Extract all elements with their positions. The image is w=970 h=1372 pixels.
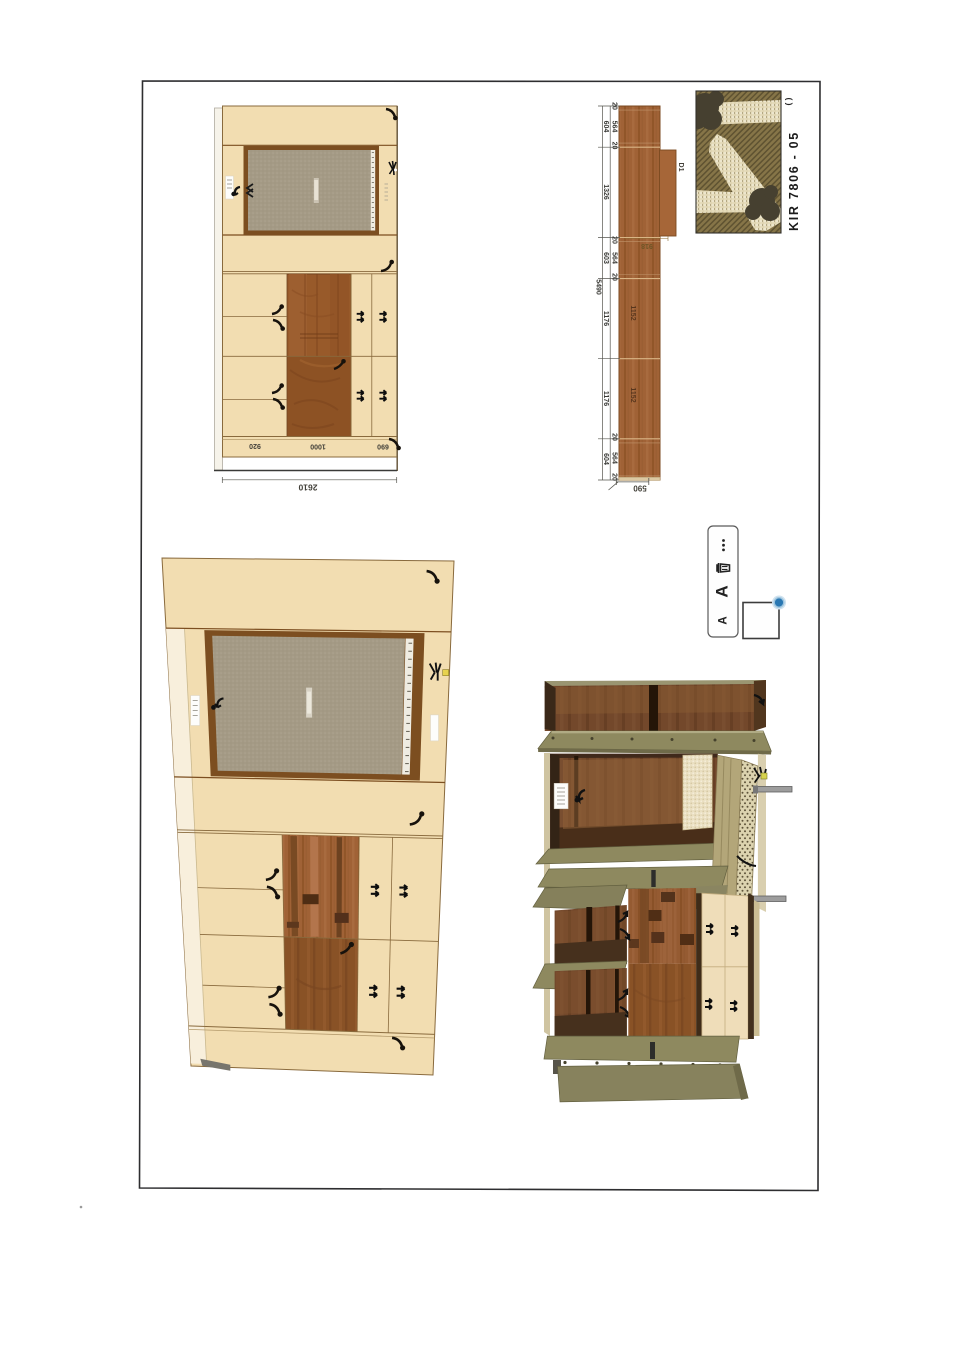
svg-text:1000: 1000 xyxy=(310,443,326,450)
svg-text:( ): ( ) xyxy=(783,97,793,105)
svg-text:604: 604 xyxy=(602,121,609,133)
svg-text:590: 590 xyxy=(633,483,647,492)
svg-text:1326: 1326 xyxy=(602,184,609,200)
svg-text:564: 564 xyxy=(611,252,618,264)
svg-text:603: 603 xyxy=(602,252,609,264)
svg-text:690: 690 xyxy=(377,443,389,450)
svg-text:A: A xyxy=(712,585,731,597)
svg-text:604: 604 xyxy=(602,453,609,465)
svg-text:2610: 2610 xyxy=(298,482,317,492)
svg-text:20: 20 xyxy=(611,102,618,110)
svg-text:20: 20 xyxy=(611,273,618,281)
svg-text:564: 564 xyxy=(611,121,618,133)
svg-text:920: 920 xyxy=(249,442,261,449)
svg-text:1176: 1176 xyxy=(602,311,609,326)
svg-text:1152: 1152 xyxy=(629,305,636,320)
svg-text:918: 918 xyxy=(641,242,653,249)
svg-text:564: 564 xyxy=(611,452,618,464)
svg-text:D1: D1 xyxy=(677,163,684,172)
svg-text:A: A xyxy=(718,616,730,624)
svg-text:20: 20 xyxy=(611,236,618,244)
svg-text:20: 20 xyxy=(611,142,618,150)
svg-text:KIR 7806 - 05: KIR 7806 - 05 xyxy=(787,131,801,231)
svg-text:5490: 5490 xyxy=(595,279,602,295)
svg-text:1152: 1152 xyxy=(629,387,636,402)
svg-text:20: 20 xyxy=(611,433,618,441)
svg-text:1176: 1176 xyxy=(602,391,609,406)
